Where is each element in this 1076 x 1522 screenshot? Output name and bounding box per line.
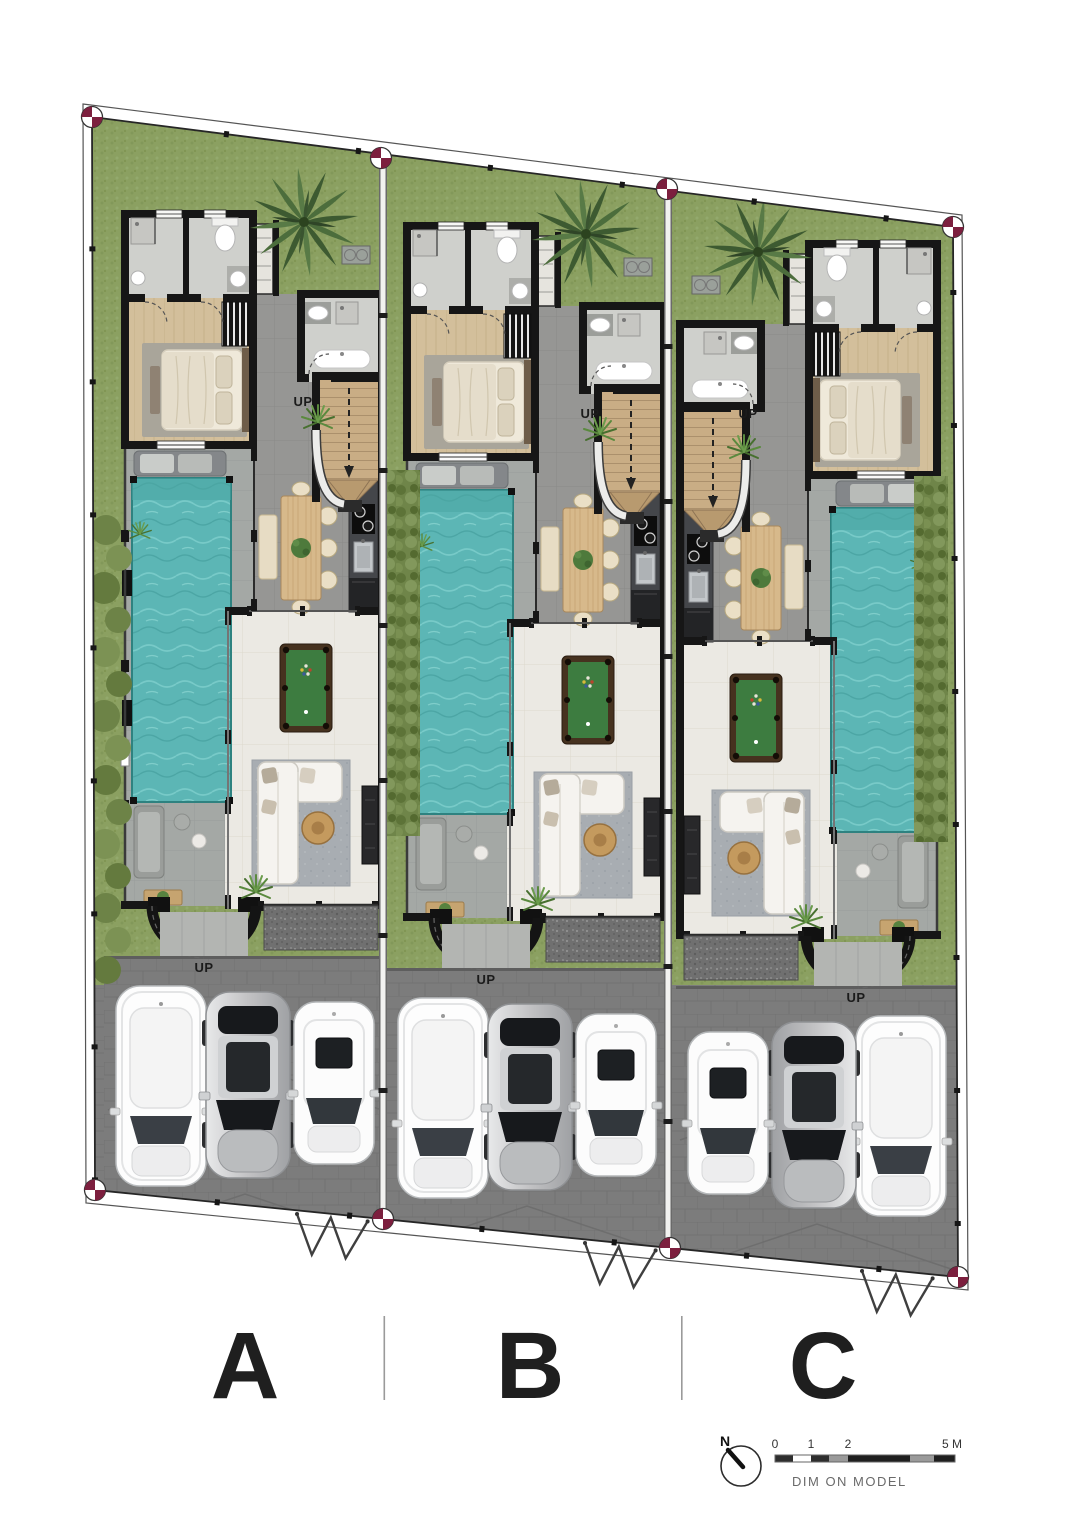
hedge-row xyxy=(386,470,420,836)
unit-b-floorplan xyxy=(386,180,668,1302)
unit-c-label: C xyxy=(789,1313,858,1419)
unit-a-entrance-up-label: UP xyxy=(194,960,213,975)
unit-a-stairs-up-label: UP xyxy=(293,394,312,409)
scale-tick-0: 0 xyxy=(772,1437,779,1451)
unit-b-stairs-up-label: UP xyxy=(580,406,599,421)
scale-tick-5m: 5 M xyxy=(942,1437,962,1451)
unit-c-stairs-up-label: UP xyxy=(738,406,757,421)
floor-plan-page: UP UP UP UP UP UP A B C N 0 1 2 5 M DIM … xyxy=(0,0,1076,1522)
unit-c-entrance-up-label: UP xyxy=(846,990,865,1005)
unit-b-entrance-up-label: UP xyxy=(476,972,495,987)
scale-caption: DIM ON MODEL xyxy=(792,1474,907,1489)
unit-b-label: B xyxy=(496,1313,565,1419)
north-compass: N xyxy=(720,1433,761,1486)
label-divider xyxy=(384,1316,386,1400)
scale-tick-1: 1 xyxy=(808,1437,815,1451)
hedge-row xyxy=(914,476,948,842)
site-area xyxy=(88,117,962,1320)
unit-a-floorplan xyxy=(104,168,386,1290)
scale-bar: 0 1 2 5 M DIM ON MODEL xyxy=(772,1437,962,1489)
unit-a-label: A xyxy=(211,1313,280,1419)
site-plan-svg: UP UP UP UP UP UP A B C N 0 1 2 5 M DIM … xyxy=(0,0,1076,1522)
scale-tick-2: 2 xyxy=(845,1437,852,1451)
north-label: N xyxy=(720,1433,730,1449)
label-divider xyxy=(681,1316,683,1400)
unit-labels: A B C xyxy=(211,1313,858,1419)
